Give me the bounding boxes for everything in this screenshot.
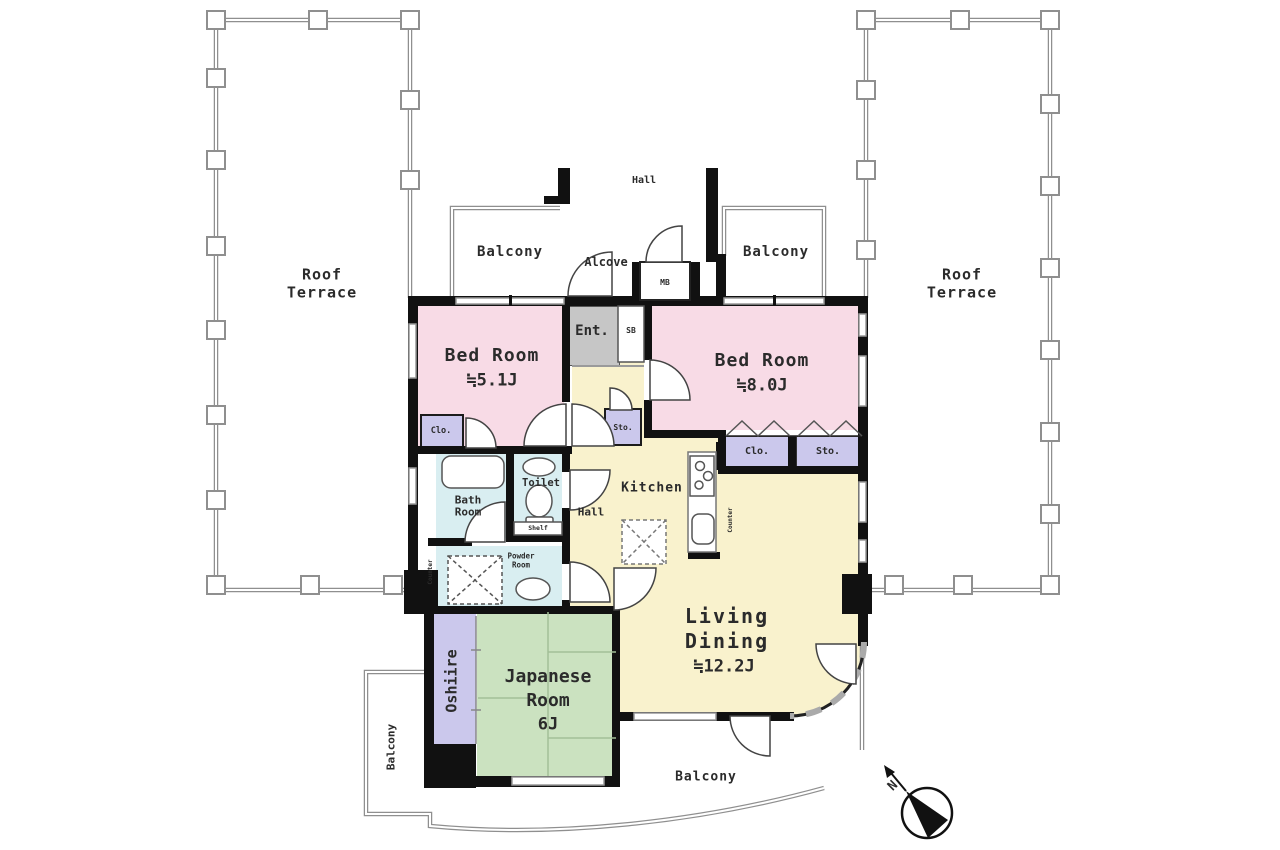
label-meter-box: MB <box>660 279 670 287</box>
powder-sink <box>516 578 550 600</box>
label-roof-terrace-left-2: Terrace <box>287 286 357 301</box>
label-closet-2: Clo. <box>745 447 769 457</box>
label-balcony-top-left: Balcony <box>477 245 543 259</box>
label-living-size: ≒12.2J <box>693 659 754 676</box>
label-shelf: Shelf <box>528 525 548 532</box>
kitchen-sink <box>692 514 714 544</box>
label-roof-terrace-right-2: Terrace <box>927 286 997 301</box>
burner-2 <box>704 472 713 481</box>
label-roof-terrace-left-1: Roof <box>302 268 342 283</box>
label-oshiire: Oshiire <box>445 649 460 712</box>
floor-plan: Roof Terrace Roof Terrace Balcony Balcon… <box>0 0 1280 850</box>
label-bedroom-large-name: Bed Room <box>715 352 810 370</box>
label-bedroom-small-name: Bed Room <box>445 347 540 365</box>
label-japanese-size: 6J <box>538 717 558 734</box>
label-storage-small: Sto. <box>613 424 632 432</box>
closet-1-door <box>466 418 496 448</box>
label-powder-1: Powder <box>507 552 534 560</box>
oshiire-sliding-door <box>471 616 481 744</box>
label-living-2: Dining <box>685 631 769 651</box>
corridor-door <box>572 404 614 446</box>
toilet-door <box>570 470 610 510</box>
label-kitchen: Kitchen <box>621 482 683 495</box>
label-balcony-bottom: Balcony <box>675 771 737 784</box>
label-hall-inner: Hall <box>578 507 605 518</box>
terrace-door <box>816 644 856 684</box>
toilet-sink <box>523 458 555 476</box>
label-bedroom-small-size: ≒5.1J <box>466 373 517 390</box>
compass <box>884 765 952 838</box>
folding-doors <box>726 421 862 436</box>
living-door <box>614 568 656 610</box>
burner-3 <box>695 481 703 489</box>
label-roof-terrace-right-1: Roof <box>942 268 982 283</box>
label-alcove: Alcove <box>584 256 627 268</box>
label-japanese-1: Japanese <box>505 668 592 686</box>
label-powder-2: Room <box>512 561 530 569</box>
label-hall-corridor: Hall <box>632 176 656 186</box>
label-bath-1: Bath <box>455 495 482 506</box>
bathtub <box>442 456 504 488</box>
bedroom-large-door <box>650 360 690 400</box>
label-balcony-left: Balcony <box>386 724 397 770</box>
storage-small-door <box>610 388 632 410</box>
roof-terrace-left-railing <box>207 11 419 594</box>
label-living-1: Living <box>685 606 769 626</box>
label-counter-powder: Counter <box>428 559 434 584</box>
label-bedroom-large-size: ≒8.0J <box>736 378 787 395</box>
powder-door <box>570 562 610 602</box>
balcony-door <box>730 716 770 756</box>
toilet-bowl <box>526 485 552 517</box>
label-storage-2: Sto. <box>816 447 840 457</box>
label-balcony-top-right: Balcony <box>743 245 809 259</box>
burner-1 <box>696 462 705 471</box>
label-japanese-2: Room <box>526 692 569 710</box>
label-closet-1: Clo. <box>431 427 451 436</box>
label-entrance: Ent. <box>575 324 609 338</box>
label-toilet: Toilet <box>522 478 560 489</box>
plan-structure <box>0 0 1280 850</box>
bedroom-small-door <box>524 404 566 446</box>
label-bath-2: Room <box>455 507 482 518</box>
label-shoe-box: SB <box>626 327 636 335</box>
roof-terrace-right-railing <box>857 11 1059 594</box>
meter-box-door <box>646 226 682 262</box>
label-counter-kitchen: Counter <box>728 507 734 532</box>
